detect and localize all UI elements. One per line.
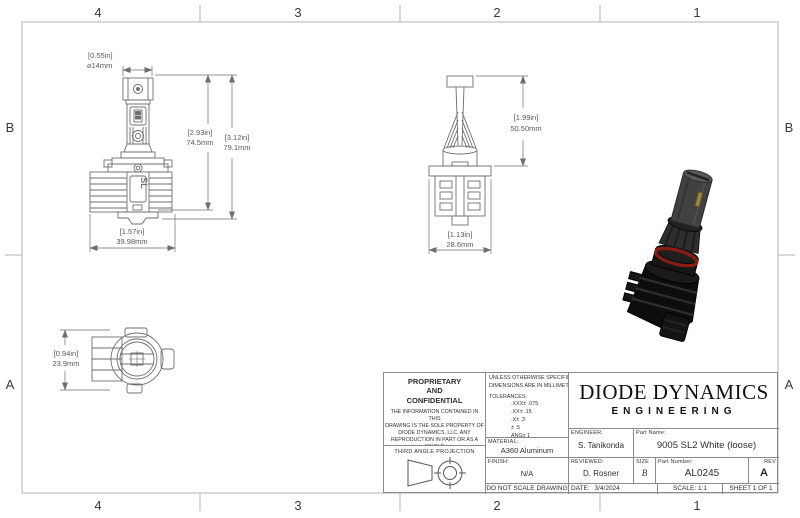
third-angle-cell: THIRD ANGLE PROJECTION bbox=[384, 446, 486, 494]
engineer-cell: ENGINEER: S. Tanikonda bbox=[569, 429, 634, 458]
tol-line-5: .XX± .15 bbox=[489, 409, 568, 417]
side-view-dimensions bbox=[429, 76, 528, 254]
company-division: ENGINEERING bbox=[569, 406, 779, 417]
isometric-render bbox=[616, 161, 730, 343]
zone-bottom-2: 2 bbox=[493, 498, 500, 513]
zone-left-a: A bbox=[6, 377, 15, 392]
finish-cell: FINISH: N/A bbox=[486, 458, 569, 484]
front-dim-width-in: [1.57in] bbox=[120, 227, 145, 236]
tolerances-cell: UNLESS OTHERWISE SPECIFIED: DIMENSIONS A… bbox=[486, 373, 569, 438]
title-block: PROPRIETARY AND CONFIDENTIAL THE INFORMA… bbox=[383, 372, 778, 493]
zone-bottom-1: 1 bbox=[693, 498, 700, 513]
size-cell: SIZE B bbox=[634, 458, 656, 484]
side-dim-width-mm: 28.6mm bbox=[446, 240, 473, 249]
zone-top-4: 4 bbox=[94, 5, 101, 20]
front-heatsink-logo: SL bbox=[139, 177, 149, 189]
zone-right-b: B bbox=[785, 120, 794, 135]
sheet-cell: SHEET 1 OF 1 bbox=[723, 484, 779, 494]
tol-line-6: .X± .3 bbox=[489, 417, 568, 425]
zone-top-2: 2 bbox=[493, 5, 500, 20]
rev-value: A bbox=[749, 467, 779, 479]
material-value: A360 Aluminum bbox=[486, 446, 568, 455]
tol-line-3: TOLERANCES: bbox=[489, 394, 568, 402]
tol-line-7: ± .5 bbox=[489, 425, 568, 433]
zone-right-a: A bbox=[785, 377, 794, 392]
finish-label: FINISH: bbox=[488, 459, 509, 465]
tol-line-1: UNLESS OTHERWISE SPECIFIED: bbox=[489, 375, 568, 383]
side-view-linework bbox=[429, 76, 491, 225]
proprietary-body: THE INFORMATION CONTAINED IN THIS DRAWIN… bbox=[384, 409, 485, 446]
material-cell: MATERIAL: A360 Aluminum bbox=[486, 438, 569, 458]
size-value: B bbox=[634, 468, 655, 478]
side-dim-width-in: [1.13in] bbox=[448, 230, 473, 239]
part-name-label: Part Name: bbox=[636, 430, 666, 436]
do-not-scale-cell: DO NOT SCALE DRAWING bbox=[486, 484, 569, 494]
proprietary-cell: PROPRIETARY AND CONFIDENTIAL THE INFORMA… bbox=[384, 373, 486, 446]
size-label: SIZE bbox=[636, 459, 649, 465]
part-number-cell: Part Number: AL0245 bbox=[656, 458, 749, 484]
do-not-scale-note: DO NOT SCALE DRAWING bbox=[486, 485, 568, 492]
front-dim-height-inner-mm: 74.5mm bbox=[186, 138, 213, 147]
reviewed-cell: REVIEWED: D. Rosner bbox=[569, 458, 634, 484]
front-dim-height-outer-in: [3.12in] bbox=[225, 133, 250, 142]
reviewed-label: REVIEWED: bbox=[571, 459, 604, 465]
tol-line-2: DIMENSIONS ARE IN MILLIMETERS bbox=[489, 383, 568, 391]
zone-bottom-3: 3 bbox=[294, 498, 301, 513]
front-dim-diameter-in: [0.55in] bbox=[88, 51, 113, 60]
front-dim-width-mm: 39.98mm bbox=[116, 237, 147, 246]
engineering-drawing-page: 4 3 2 1 4 3 2 1 B A B A bbox=[0, 0, 800, 518]
top-view-linework bbox=[92, 328, 174, 393]
scale-cell: SCALE: 1:1 bbox=[658, 484, 723, 494]
tol-line-4: .XXX± .075 bbox=[489, 401, 568, 409]
zone-top-3: 3 bbox=[294, 5, 301, 20]
date-value: 3/4/2024 bbox=[594, 485, 619, 492]
part-name-cell: Part Name: 9005 SL2 White (loose) bbox=[634, 429, 779, 458]
material-label: MATERIAL: bbox=[488, 439, 518, 445]
proprietary-title: PROPRIETARY AND CONFIDENTIAL bbox=[384, 377, 485, 405]
date-label: DATE: bbox=[571, 485, 590, 492]
rev-label: REV bbox=[764, 459, 776, 465]
rev-cell: REV A bbox=[749, 458, 779, 484]
engineer-label: ENGINEER: bbox=[571, 430, 603, 436]
date-cell: DATE: 3/4/2024 bbox=[569, 484, 658, 494]
engineer-value: S. Tanikonda bbox=[569, 441, 633, 450]
part-name-value: 9005 SL2 White (loose) bbox=[634, 440, 779, 451]
part-number-value: AL0245 bbox=[656, 468, 748, 479]
front-dim-height-inner-in: [2.93in] bbox=[188, 128, 213, 137]
side-dim-height-in: [1.99in] bbox=[514, 113, 539, 122]
finish-value: N/A bbox=[486, 469, 568, 478]
part-number-label: Part Number: bbox=[658, 459, 693, 465]
third-angle-projection-icon bbox=[384, 455, 486, 491]
logo-cell: DIODE DYNAMICS ENGINEERING bbox=[569, 373, 779, 429]
side-dim-height-mm: 50.50mm bbox=[510, 124, 541, 133]
front-dim-height-outer-mm: 79.1mm bbox=[223, 143, 250, 152]
front-view-linework bbox=[90, 78, 172, 224]
zone-top-1: 1 bbox=[693, 5, 700, 20]
front-dim-diameter-mm: ⌀14mm bbox=[87, 61, 112, 70]
sheet-value: SHEET 1 OF 1 bbox=[723, 485, 779, 492]
scale-value: SCALE: 1:1 bbox=[658, 485, 722, 492]
zone-left-b: B bbox=[6, 120, 15, 135]
reviewed-value: D. Rosner bbox=[569, 469, 633, 478]
company-name: DIODE DYNAMICS bbox=[569, 380, 779, 405]
top-dim-height-mm: 23.9mm bbox=[52, 359, 79, 368]
zone-bottom-4: 4 bbox=[94, 498, 101, 513]
top-dim-height-in: [0.94in] bbox=[54, 349, 79, 358]
